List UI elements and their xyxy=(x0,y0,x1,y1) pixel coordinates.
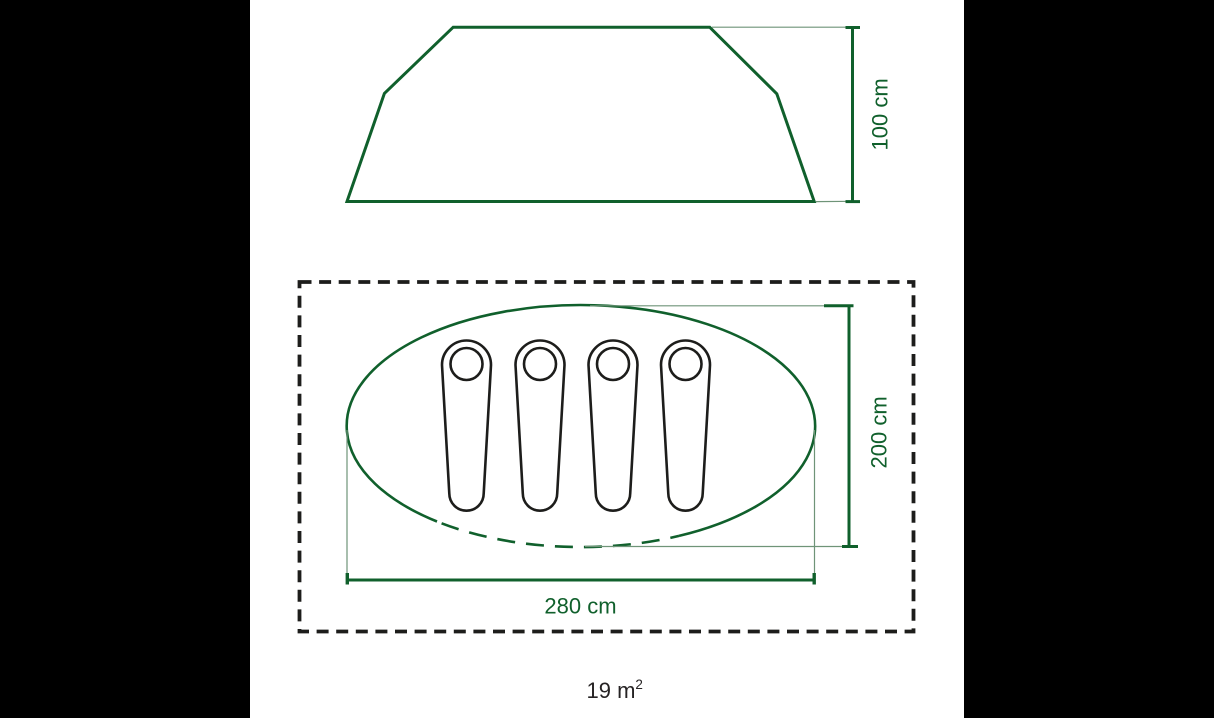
svg-text:280 cm: 280 cm xyxy=(544,594,616,619)
svg-text:100 cm: 100 cm xyxy=(868,78,893,150)
svg-text:19 m2: 19 m2 xyxy=(587,677,643,703)
svg-text:200 cm: 200 cm xyxy=(867,396,892,468)
